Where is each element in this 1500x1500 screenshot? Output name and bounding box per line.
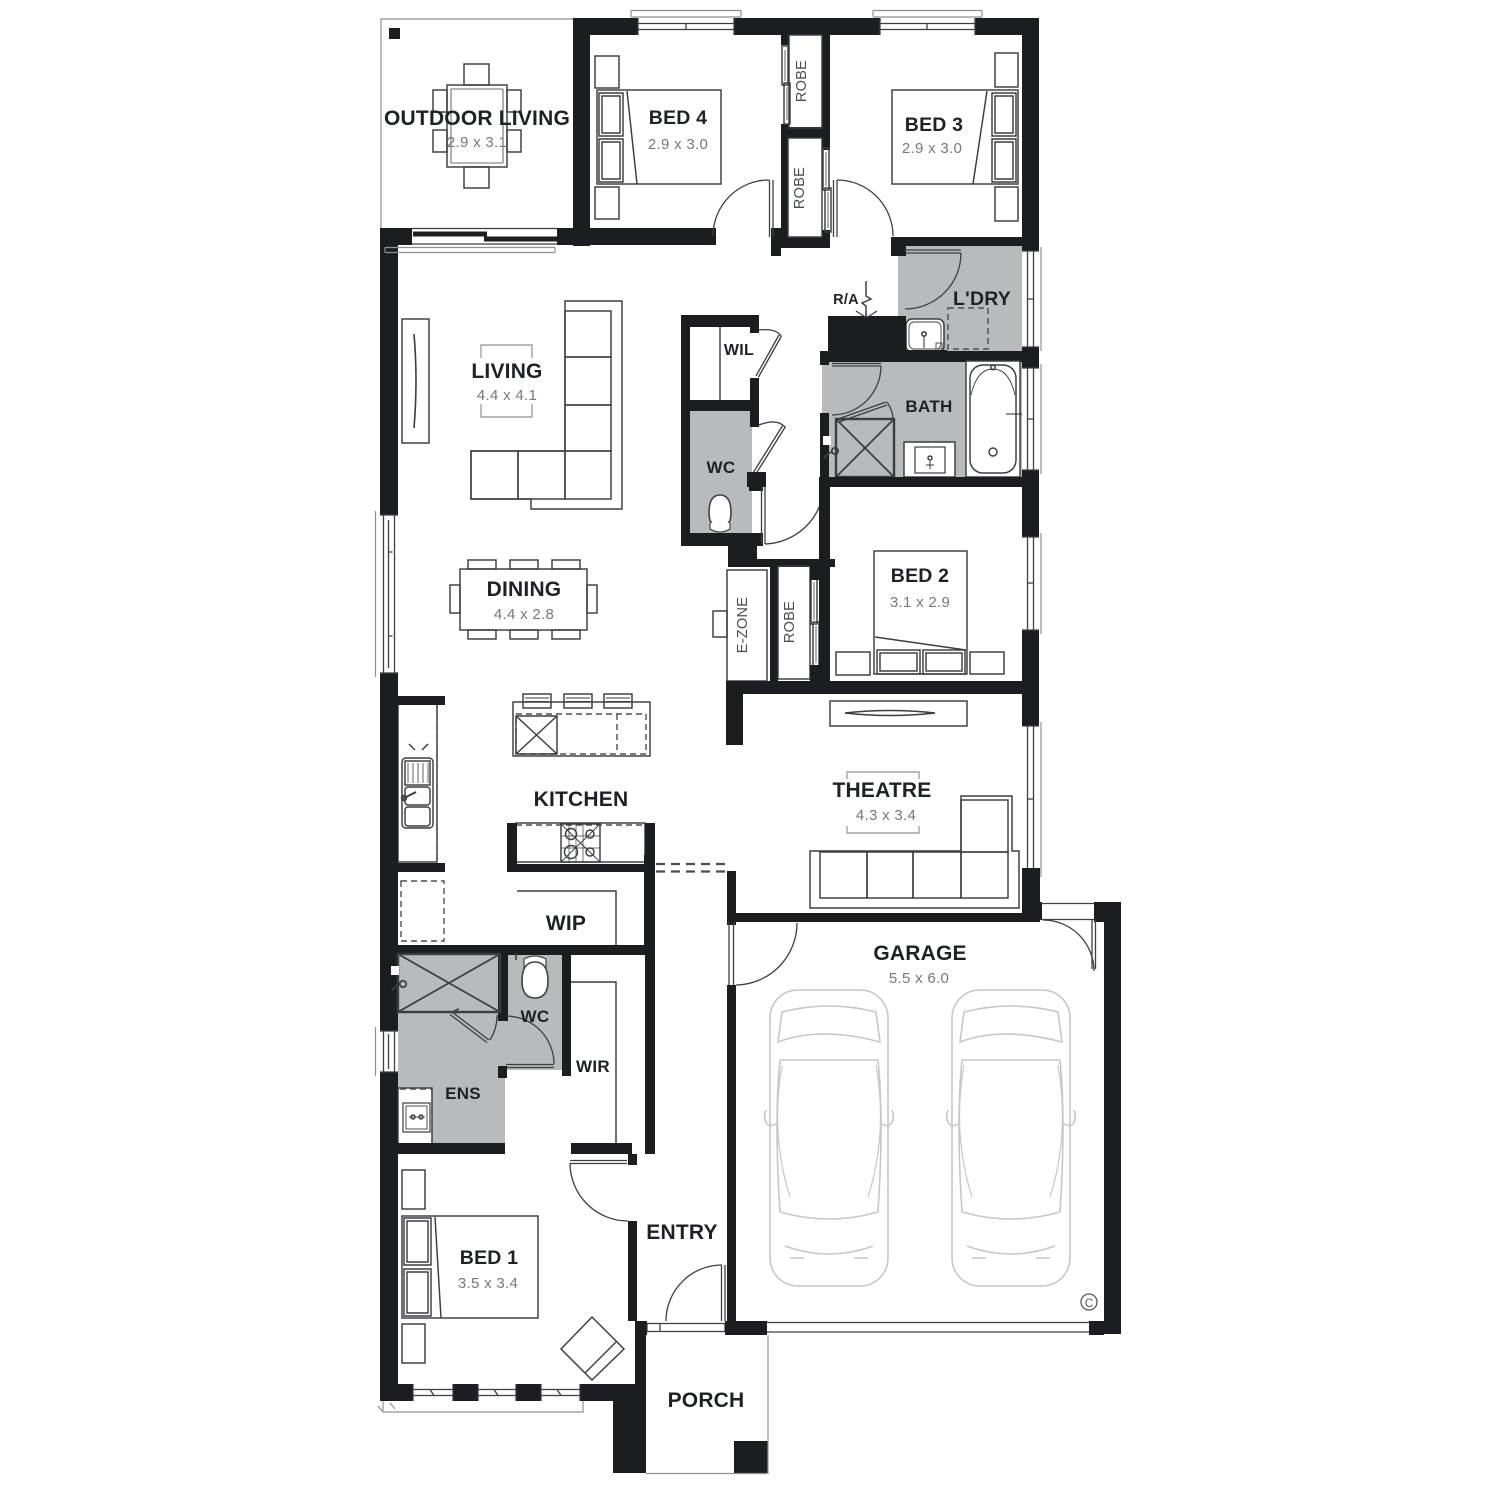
svg-text:BED 4: BED 4	[649, 107, 707, 129]
svg-text:ROBE: ROBE	[792, 167, 808, 209]
svg-text:BATH: BATH	[905, 397, 952, 416]
svg-text:THEATRE: THEATRE	[832, 779, 931, 802]
svg-text:L'DRY: L'DRY	[953, 288, 1011, 310]
svg-text:R/A: R/A	[833, 292, 859, 308]
svg-text:BED 2: BED 2	[891, 565, 949, 587]
svg-text:ENS: ENS	[445, 1084, 481, 1103]
svg-text:DINING: DINING	[487, 578, 562, 601]
svg-text:ROBE: ROBE	[782, 601, 798, 643]
svg-text:WC: WC	[707, 458, 736, 477]
svg-text:ENTRY: ENTRY	[646, 1221, 717, 1244]
svg-text:LIVING: LIVING	[471, 360, 542, 383]
svg-text:4.4 x 2.8: 4.4 x 2.8	[494, 606, 554, 623]
svg-text:WC: WC	[521, 1007, 550, 1026]
svg-text:ROBE: ROBE	[794, 60, 810, 102]
svg-text:KITCHEN: KITCHEN	[534, 788, 629, 811]
svg-text:OUTDOOR LIVING: OUTDOOR LIVING	[384, 107, 570, 130]
svg-text:5.5 x 6.0: 5.5 x 6.0	[889, 970, 949, 987]
svg-text:2.9 x 3.0: 2.9 x 3.0	[648, 136, 708, 153]
svg-text:WIP: WIP	[546, 912, 586, 935]
svg-text:3.1 x 2.9: 3.1 x 2.9	[890, 594, 950, 611]
svg-text:4.3 x 3.4: 4.3 x 3.4	[856, 807, 916, 824]
svg-text:GARAGE: GARAGE	[873, 942, 966, 965]
svg-text:WIL: WIL	[724, 342, 754, 359]
svg-text:C: C	[1085, 1298, 1093, 1310]
svg-text:3.5 x 3.4: 3.5 x 3.4	[458, 1275, 518, 1292]
svg-text:WIR: WIR	[576, 1057, 610, 1076]
svg-text:BED 1: BED 1	[460, 1247, 518, 1269]
svg-text:2.9 x 3.1: 2.9 x 3.1	[447, 134, 507, 151]
svg-text:BED 3: BED 3	[905, 114, 963, 136]
svg-text:4.4 x 4.1: 4.4 x 4.1	[477, 387, 537, 404]
svg-text:PORCH: PORCH	[668, 1389, 745, 1412]
svg-text:2.9 x 3.0: 2.9 x 3.0	[902, 140, 962, 157]
svg-text:E-ZONE: E-ZONE	[735, 597, 751, 654]
